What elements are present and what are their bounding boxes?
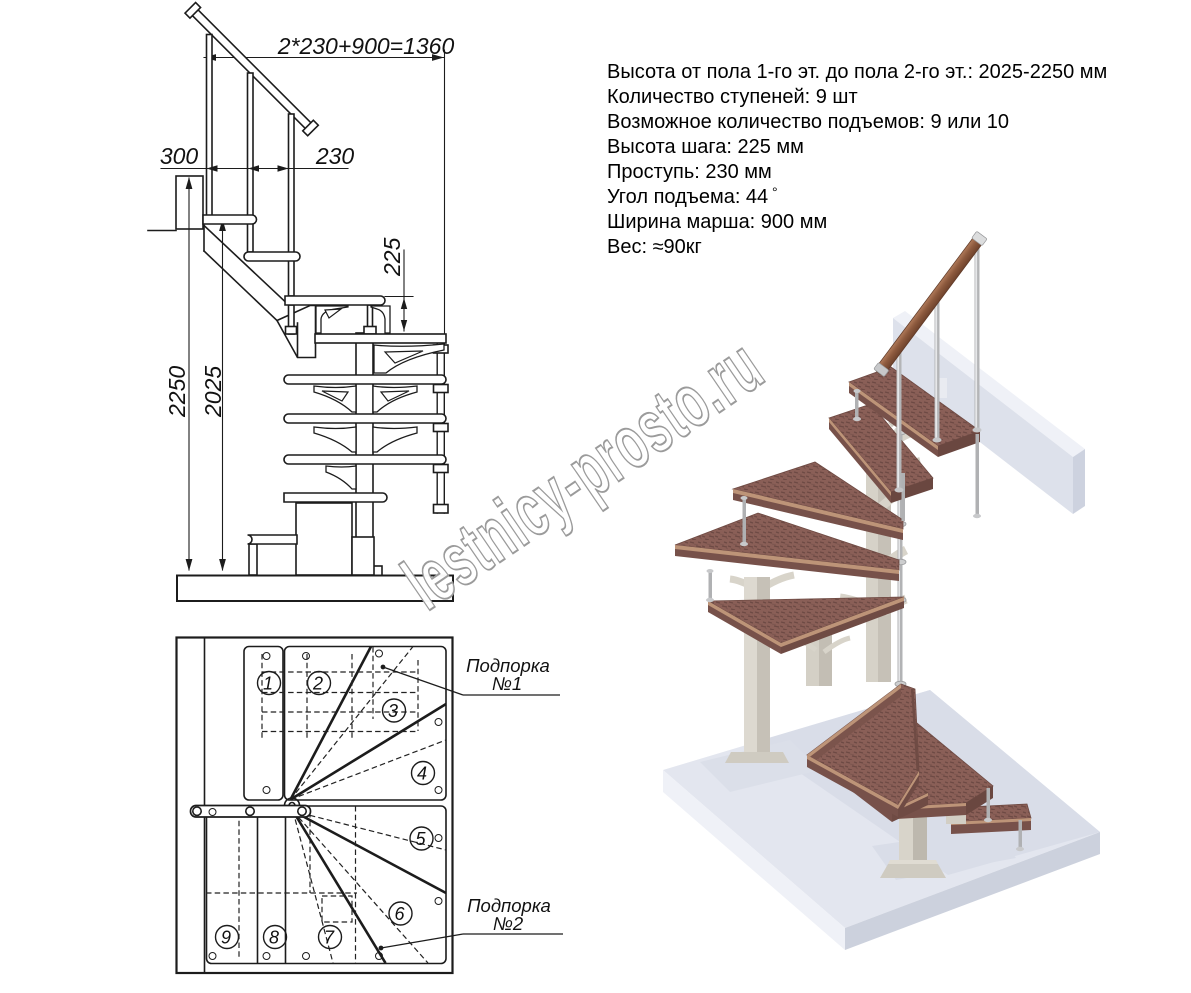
svg-text:3: 3 [388, 701, 398, 721]
svg-text:9: 9 [221, 928, 231, 948]
svg-text:Высота шага: 225 мм: Высота шага: 225 мм [607, 136, 804, 158]
svg-text:2025: 2025 [200, 366, 226, 418]
svg-text:2*230+900=1360: 2*230+900=1360 [277, 33, 455, 59]
svg-text:1: 1 [263, 674, 273, 694]
svg-text:Ширина марша: 900 мм: Ширина марша: 900 мм [607, 211, 827, 233]
svg-text:Вес: ≈90кг: Вес: ≈90кг [607, 236, 702, 258]
svg-text:Высота от пола 1-го эт. до пол: Высота от пола 1-го эт. до пола 2-го эт.… [607, 61, 1107, 83]
svg-text:300: 300 [160, 143, 199, 169]
svg-text:№2: №2 [493, 913, 524, 934]
svg-text:2250: 2250 [164, 366, 190, 418]
svg-text:8: 8 [269, 928, 279, 948]
svg-text:2: 2 [312, 674, 323, 694]
svg-text:Количество ступеней: 9 шт: Количество ступеней: 9 шт [607, 86, 858, 108]
svg-text:7: 7 [324, 928, 335, 948]
svg-text:№1: №1 [492, 673, 522, 694]
svg-text:225: 225 [379, 237, 405, 277]
svg-text:Проступь: 230 мм: Проступь: 230 мм [607, 161, 772, 183]
svg-text:Угол подъема: 44 °: Угол подъема: 44 ° [607, 184, 778, 208]
svg-text:Возможное количество подъемов:: Возможное количество подъемов: 9 или 10 [607, 111, 1009, 133]
svg-text:lestnicy-prosto.ru: lestnicy-prosto.ru [389, 323, 778, 626]
svg-text:230: 230 [315, 143, 355, 169]
svg-text:5: 5 [415, 829, 426, 849]
svg-text:4: 4 [417, 764, 427, 784]
svg-text:6: 6 [394, 904, 405, 924]
